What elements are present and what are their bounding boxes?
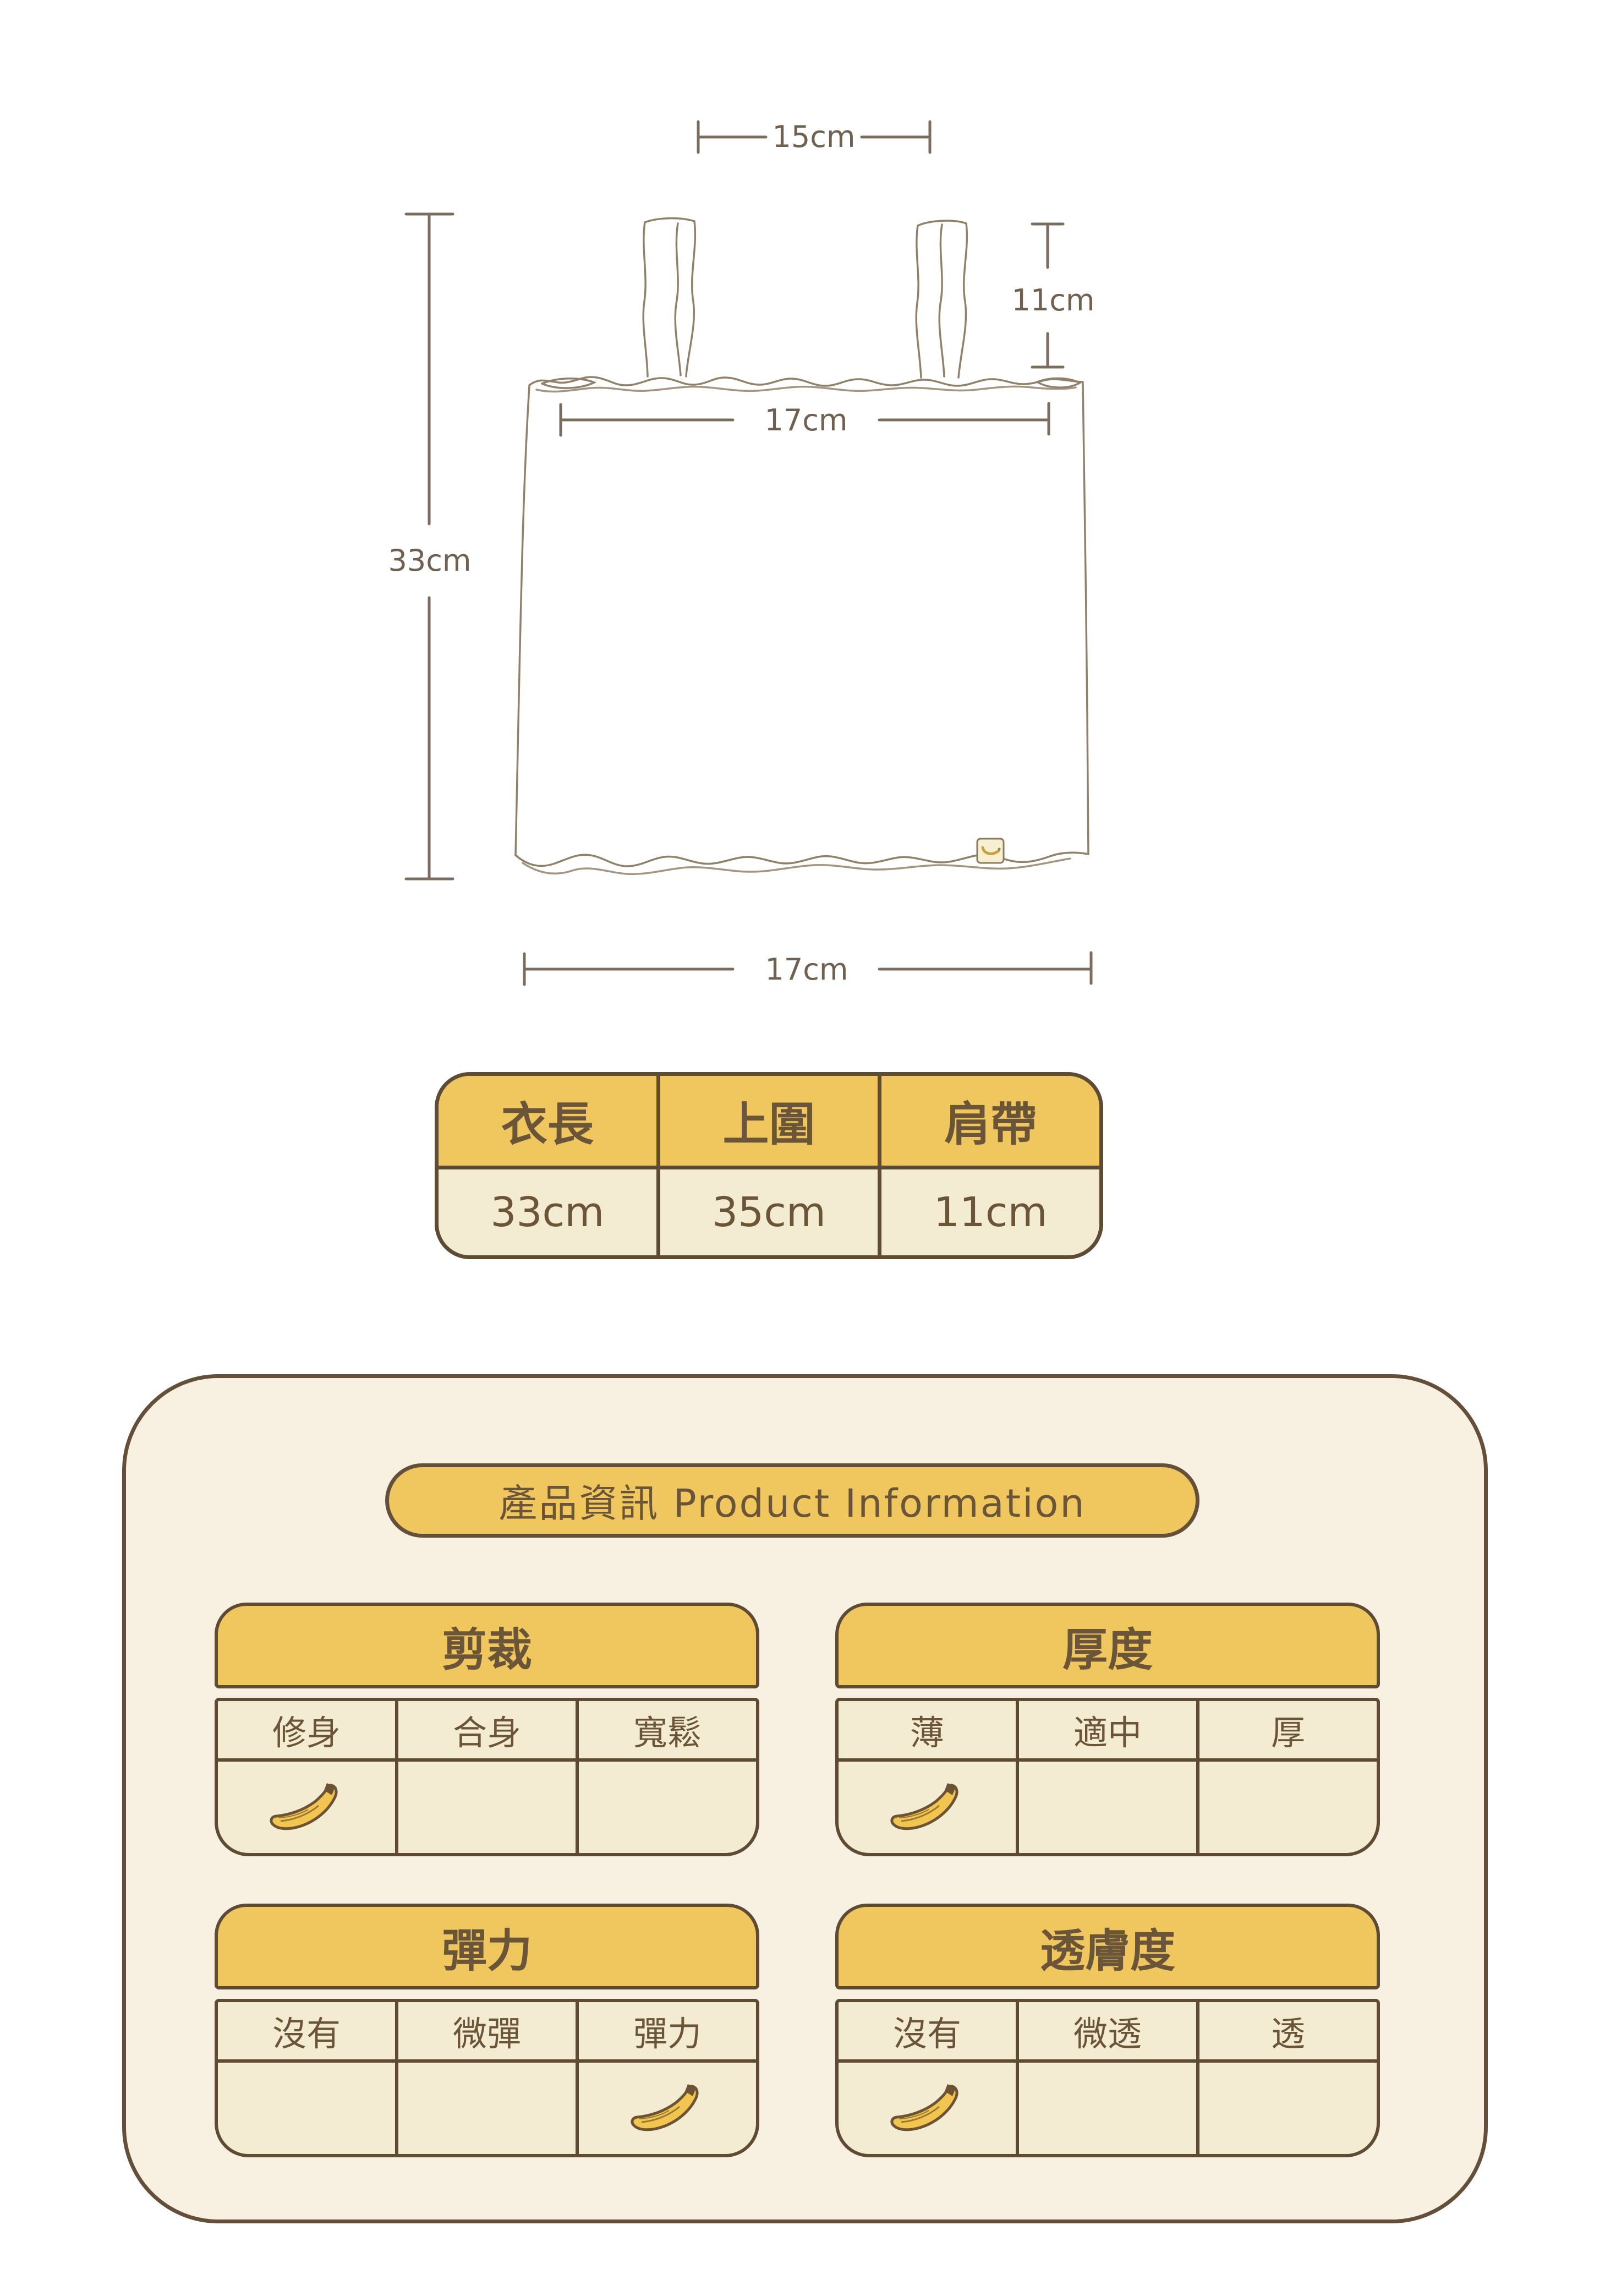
cut-empty-cell <box>395 1762 576 1853</box>
sheerness-option-none: 沒有 <box>839 2002 1016 2059</box>
elasticity-empty-cell <box>395 2063 576 2154</box>
thickness-option-medium: 適中 <box>1016 1701 1196 1758</box>
thickness-selected-cell <box>839 1762 1016 1853</box>
sheerness-empty-cell <box>1016 2063 1196 2154</box>
elasticity-selection-row <box>218 2063 756 2154</box>
dim-label-garment-length: 33cm <box>388 543 471 578</box>
thickness-table-title: 厚度 <box>835 1603 1380 1688</box>
product-info-title: 產品資訊 Product Information <box>385 1463 1199 1538</box>
garment-outline <box>516 218 1088 874</box>
thickness-option-thick: 厚 <box>1196 1701 1377 1758</box>
size-table: 衣長 上圍 肩帶 33cm 35cm 11cm <box>435 1072 1103 1259</box>
banana-icon <box>886 2082 968 2135</box>
elasticity-option-slight: 微彈 <box>395 2002 576 2059</box>
elasticity-table-title: 彈力 <box>215 1904 759 1989</box>
thickness-table: 薄 適中 厚 <box>835 1698 1380 1856</box>
cut-table: 修身 合身 寬鬆 <box>215 1698 759 1856</box>
dim-label-strap-length: 11cm <box>1011 283 1094 318</box>
dim-label-strap-span: 15cm <box>772 119 855 154</box>
brand-tag <box>977 839 1004 863</box>
sheerness-option-row: 沒有 微透 透 <box>839 2002 1377 2063</box>
size-header-strap: 肩帶 <box>878 1076 1099 1166</box>
size-header-length: 衣長 <box>439 1076 656 1166</box>
sheerness-selected-cell <box>839 2063 1016 2154</box>
banana-icon <box>886 1781 968 1834</box>
elasticity-option-none: 沒有 <box>218 2002 395 2059</box>
size-value-length: 33cm <box>439 1169 656 1255</box>
elasticity-selected-cell <box>576 2063 756 2154</box>
elasticity-option-stretchy: 彈力 <box>576 2002 756 2059</box>
sheerness-selection-row <box>839 2063 1377 2154</box>
elasticity-table: 沒有 微彈 彈力 <box>215 1999 759 2157</box>
size-header-bust: 上圍 <box>656 1076 878 1166</box>
cut-option-slim: 修身 <box>218 1701 395 1758</box>
product-info-page: 15cm 11cm 17cm 33cm 17cm 衣長 上圍 肩帶 33cm 3… <box>0 0 1605 2296</box>
thickness-option-thin: 薄 <box>839 1701 1016 1758</box>
dim-label-top-width: 17cm <box>764 403 847 438</box>
thickness-empty-cell <box>1196 1762 1377 1853</box>
sheerness-option-slight: 微透 <box>1016 2002 1196 2059</box>
cut-option-fitted: 合身 <box>395 1701 576 1758</box>
size-table-value-row: 33cm 35cm 11cm <box>439 1169 1099 1255</box>
thickness-empty-cell <box>1016 1762 1196 1853</box>
sheerness-table: 沒有 微透 透 <box>835 1999 1380 2157</box>
cut-selection-row <box>218 1762 756 1853</box>
cut-table-title: 剪裁 <box>215 1603 759 1688</box>
sheerness-option-sheer: 透 <box>1196 2002 1377 2059</box>
sheerness-empty-cell <box>1196 2063 1377 2154</box>
elasticity-empty-cell <box>218 2063 395 2154</box>
size-value-bust: 35cm <box>656 1169 878 1255</box>
cut-option-row: 修身 合身 寬鬆 <box>218 1701 756 1762</box>
dim-label-bottom-width: 17cm <box>765 952 848 987</box>
camisole-sketch: 15cm 11cm 17cm 33cm 17cm <box>0 0 1605 1046</box>
banana-icon <box>265 1781 348 1834</box>
banana-icon <box>626 2082 709 2135</box>
size-table-header-row: 衣長 上圍 肩帶 <box>439 1076 1099 1169</box>
thickness-selection-row <box>839 1762 1377 1853</box>
size-value-strap: 11cm <box>878 1169 1099 1255</box>
thickness-option-row: 薄 適中 厚 <box>839 1701 1377 1762</box>
cut-selected-cell <box>218 1762 395 1853</box>
cut-empty-cell <box>576 1762 756 1853</box>
product-info-panel: 產品資訊 Product Information 剪裁 修身 合身 寬鬆 厚度 … <box>122 1374 1488 2223</box>
cut-option-loose: 寬鬆 <box>576 1701 756 1758</box>
elasticity-option-row: 沒有 微彈 彈力 <box>218 2002 756 2063</box>
sheerness-table-title: 透膚度 <box>835 1904 1380 1989</box>
